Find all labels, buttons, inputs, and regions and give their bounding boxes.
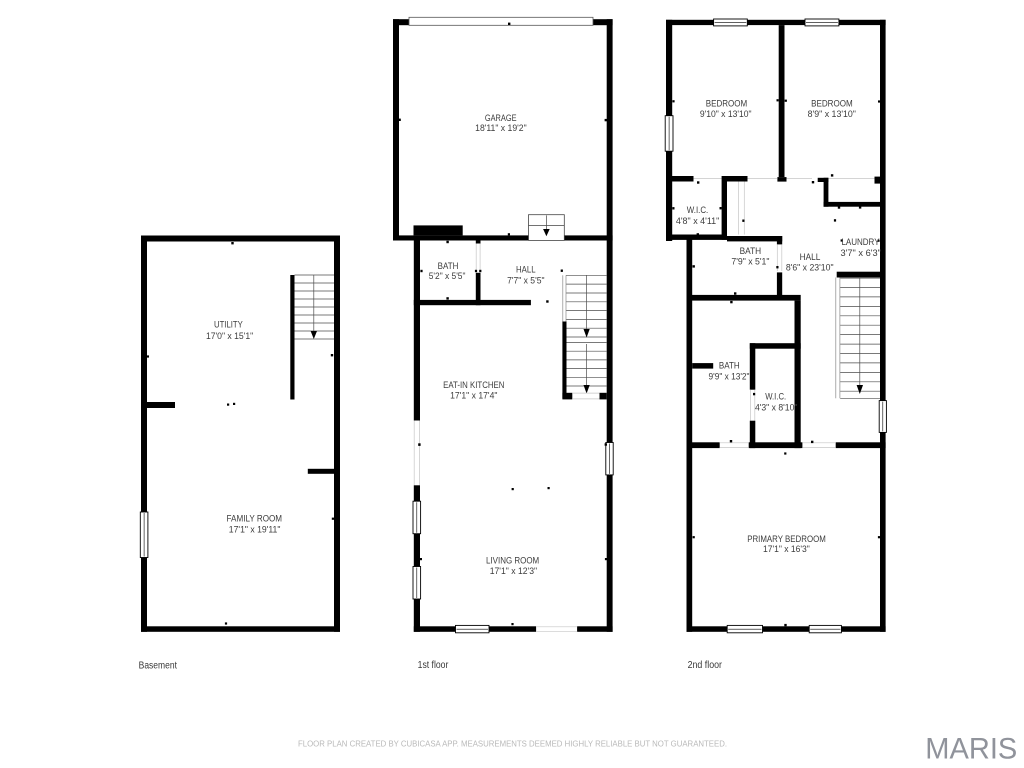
svg-text:EAT-IN KITCHEN: EAT-IN KITCHEN xyxy=(443,380,504,390)
svg-text:8'9" x 13'10": 8'9" x 13'10" xyxy=(808,109,856,119)
svg-text:17'1" x 12'3": 17'1" x 12'3" xyxy=(490,566,537,576)
svg-text:HALL: HALL xyxy=(516,265,536,275)
svg-text:BEDROOM: BEDROOM xyxy=(706,99,748,109)
svg-text:2nd floor: 2nd floor xyxy=(688,660,723,671)
svg-text:W.I.C.: W.I.C. xyxy=(765,391,786,401)
svg-text:9'9" x 13'2": 9'9" x 13'2" xyxy=(709,372,750,382)
svg-text:FAMILY ROOM: FAMILY ROOM xyxy=(227,513,283,523)
svg-text:W.I.C.: W.I.C. xyxy=(687,205,709,215)
svg-text:LIVING ROOM: LIVING ROOM xyxy=(486,556,539,566)
svg-text:BATH: BATH xyxy=(719,361,740,371)
svg-text:Basement: Basement xyxy=(139,661,178,672)
svg-text:PRIMARY BEDROOM: PRIMARY BEDROOM xyxy=(747,534,826,544)
svg-text:FLOOR PLAN CREATED BY CUBICASA: FLOOR PLAN CREATED BY CUBICASA APP. MEAS… xyxy=(298,740,727,749)
svg-text:GARAGE: GARAGE xyxy=(485,113,517,123)
svg-text:17'1" x 17'4": 17'1" x 17'4" xyxy=(450,390,497,400)
svg-text:BEDROOM: BEDROOM xyxy=(811,99,853,109)
svg-text:17'1" x 16'3": 17'1" x 16'3" xyxy=(763,544,810,554)
svg-text:8'6" x 23'10": 8'6" x 23'10" xyxy=(786,263,834,273)
svg-text:17'1" x 19'11": 17'1" x 19'11" xyxy=(229,525,281,535)
svg-text:5'2" x 5'5": 5'2" x 5'5" xyxy=(429,271,466,281)
svg-text:4'8" x 4'11": 4'8" x 4'11" xyxy=(676,216,720,226)
svg-text:4'3" x 8'10": 4'3" x 8'10" xyxy=(755,403,798,413)
svg-text:LAUNDRY: LAUNDRY xyxy=(841,237,879,247)
svg-text:MARIS: MARIS xyxy=(925,732,1017,765)
svg-text:18'11" x 19'2": 18'11" x 19'2" xyxy=(475,123,527,133)
svg-text:7'9" x 5'1": 7'9" x 5'1" xyxy=(731,257,769,267)
svg-text:BATH: BATH xyxy=(438,261,459,271)
svg-text:17'0" x 15'1": 17'0" x 15'1" xyxy=(206,331,253,341)
svg-text:BATH: BATH xyxy=(740,246,762,256)
svg-text:HALL: HALL xyxy=(800,252,821,262)
svg-text:1st floor: 1st floor xyxy=(418,660,449,671)
svg-text:3'7" x 6'3": 3'7" x 6'3" xyxy=(841,248,881,258)
svg-text:9'10" x 13'10": 9'10" x 13'10" xyxy=(700,109,752,119)
svg-text:UTILITY: UTILITY xyxy=(214,319,243,329)
svg-text:7'7" x 5'5": 7'7" x 5'5" xyxy=(507,276,544,286)
